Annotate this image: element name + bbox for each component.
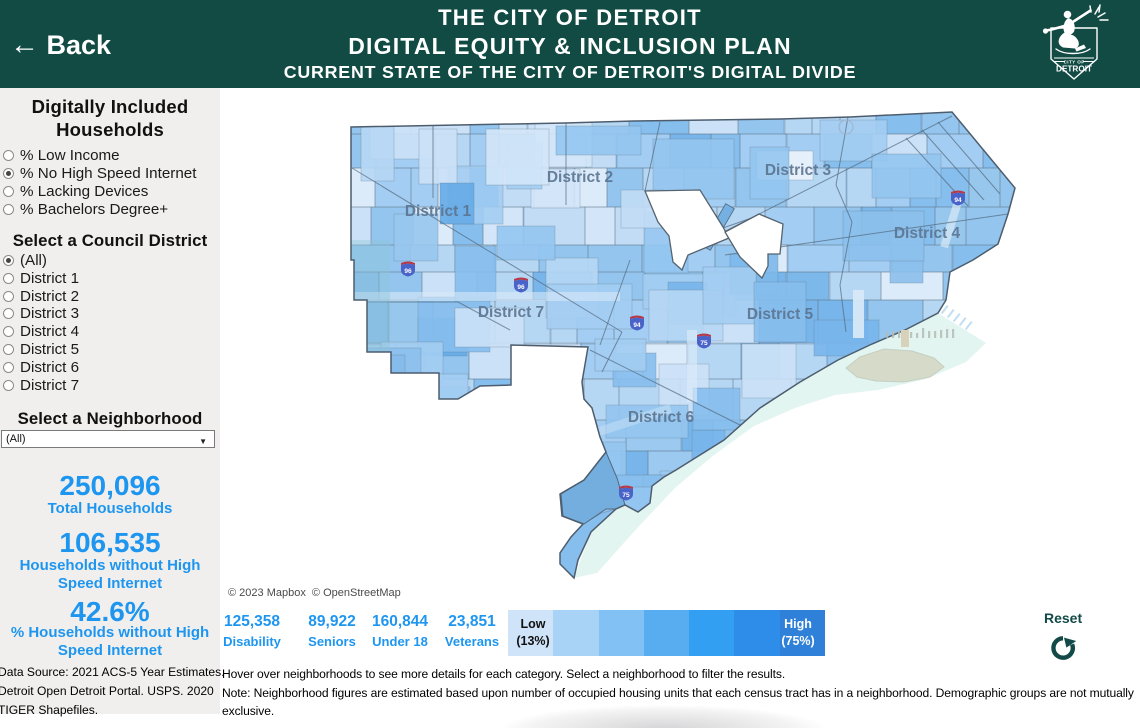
svg-text:District 4: District 4 [894, 225, 961, 242]
svg-text:District 1: District 1 [405, 203, 472, 220]
svg-text:94: 94 [954, 197, 962, 204]
svg-text:DETROIT: DETROIT [1056, 65, 1092, 74]
svg-text:District 2: District 2 [547, 169, 613, 186]
svg-text:94: 94 [633, 322, 641, 329]
svg-text:District 5: District 5 [747, 306, 814, 323]
svg-text:96: 96 [517, 284, 525, 291]
svg-text:District 6: District 6 [628, 409, 695, 426]
svg-text:District 3: District 3 [765, 162, 832, 179]
svg-text:96: 96 [404, 268, 412, 275]
svg-text:District 7: District 7 [478, 304, 544, 321]
svg-text:75: 75 [700, 340, 708, 347]
svg-text:75: 75 [622, 492, 630, 499]
